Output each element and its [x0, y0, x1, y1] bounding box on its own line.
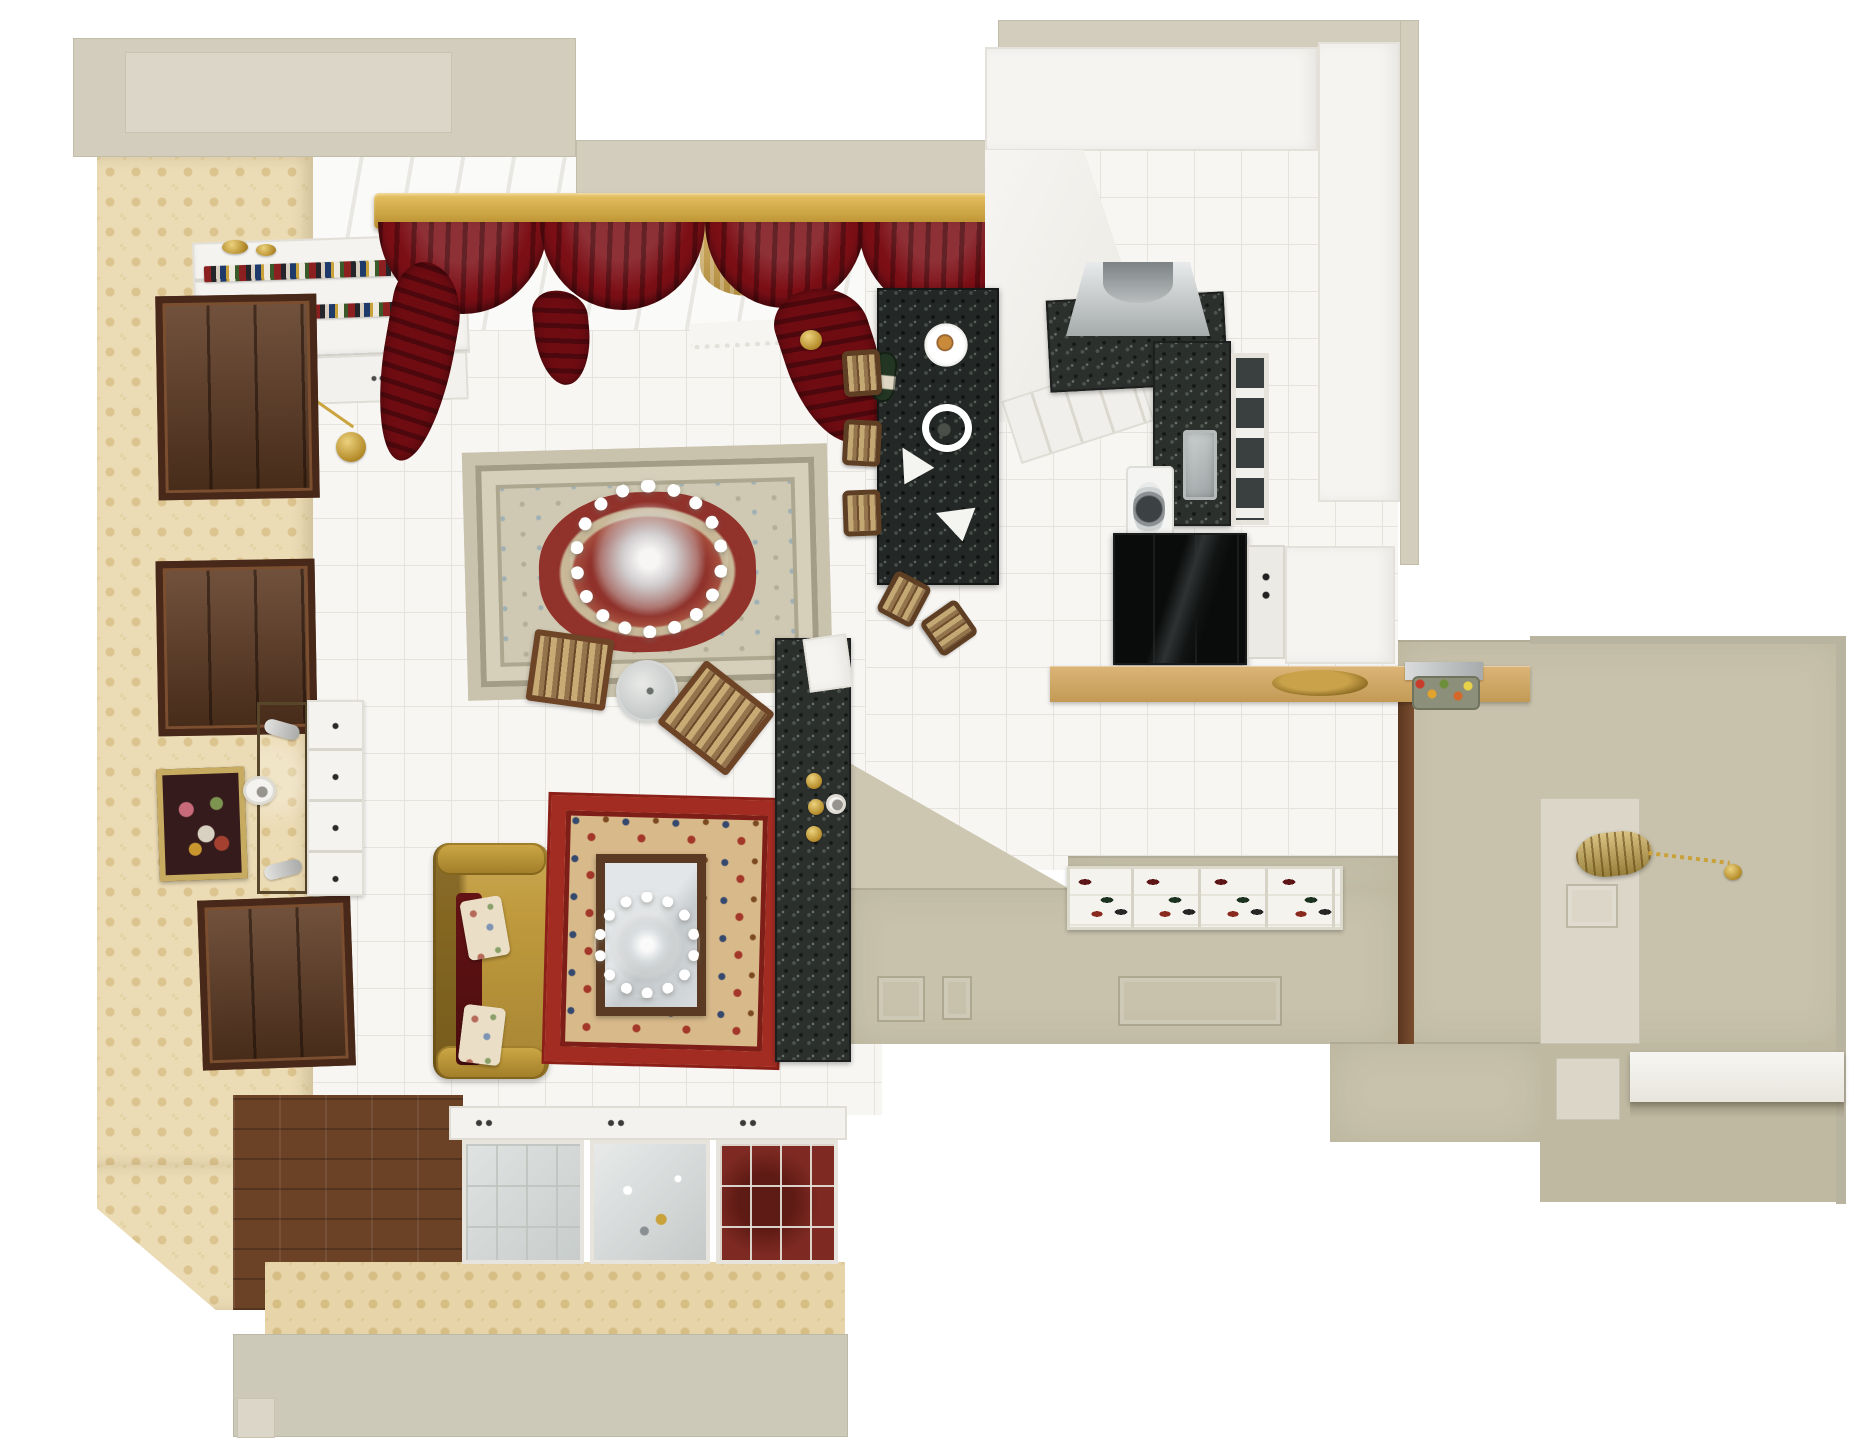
cabinet-knob-strip [1247, 545, 1285, 659]
hall-top-edge [1530, 636, 1846, 644]
kitchen-white-lower-column [1285, 546, 1395, 664]
china-cabinet-crystal-middle [590, 1140, 710, 1264]
console-gold-candlestick-3 [806, 826, 822, 842]
hall-mid-wall-block [1330, 1042, 1542, 1142]
hall-wall-panel-3 [1118, 976, 1282, 1026]
hall-wall-panel-2 [942, 976, 972, 1020]
hall-flower-arrangement [1412, 676, 1480, 710]
island-plate-with-food [920, 322, 972, 368]
console-gold-candlestick-1 [806, 773, 822, 789]
outer-wall-top-left-inset [125, 52, 452, 133]
china-cabinet-top-band [449, 1106, 847, 1140]
hall-pony-wall-cutout [1566, 884, 1618, 928]
bar-stool-3 [842, 489, 882, 536]
curtain-tieback-gold [800, 330, 822, 350]
left-wall-door-3 [197, 895, 356, 1070]
bar-stool-2 [842, 419, 882, 467]
bar-stool-1 [841, 349, 882, 398]
bottom-wall-step [237, 1398, 275, 1438]
framed-painting [156, 766, 248, 881]
floor-plan-stage [0, 0, 1864, 1440]
living-chandelier [570, 480, 728, 638]
left-wall-door-1 [155, 294, 320, 501]
glass-front-cabinet [1231, 353, 1269, 525]
china-cabinet-glass-left [462, 1140, 584, 1264]
shelf-gold-vase-2 [256, 244, 276, 256]
console-white-sconce [826, 794, 846, 814]
hall-white-shelf [1630, 1052, 1844, 1102]
kitchen-tall-cabinet-column [1318, 42, 1400, 502]
granite-console [775, 638, 851, 1062]
gold-serving-tray [1272, 670, 1368, 696]
hall-shoe-cabinet [1067, 866, 1343, 930]
kitchen-sink [1183, 430, 1217, 500]
black-fridge [1113, 533, 1247, 665]
kitchen-upper-cabinet-band [985, 47, 1318, 151]
range-hood [1066, 262, 1210, 336]
hall-wall-panel-1 [877, 976, 925, 1022]
bottom-outer-wall-band [233, 1334, 848, 1437]
console-gold-candlestick-2 [808, 799, 824, 815]
lantern-chain-knob [1724, 864, 1742, 880]
hall-corridor-light-square [1556, 1058, 1620, 1120]
outer-wall-top-band [576, 140, 1013, 198]
kitchen-outer-right-strip [1400, 20, 1419, 565]
white-dresser [307, 700, 364, 896]
mantel-clock [243, 776, 276, 805]
gold-sofa-arm-top [436, 843, 546, 875]
china-cabinet-glass-right [716, 1140, 838, 1264]
hall-shelf-shadow [1630, 1102, 1844, 1118]
console-white-end [802, 633, 853, 693]
shelf-gold-vase-1 [222, 240, 248, 254]
coffee-table-chandelier-reflection [594, 892, 700, 998]
hall-door-frame-strip [1398, 700, 1414, 1044]
hall-right-outer-edge [1836, 638, 1846, 1204]
island-ring-decor [922, 404, 972, 452]
bottom-wall-wallpaper-band [265, 1262, 845, 1336]
wall-clock-pendulum-disc [336, 432, 366, 462]
folding-chair-1 [525, 629, 614, 711]
sofa-floral-pillow-2 [458, 1004, 507, 1067]
